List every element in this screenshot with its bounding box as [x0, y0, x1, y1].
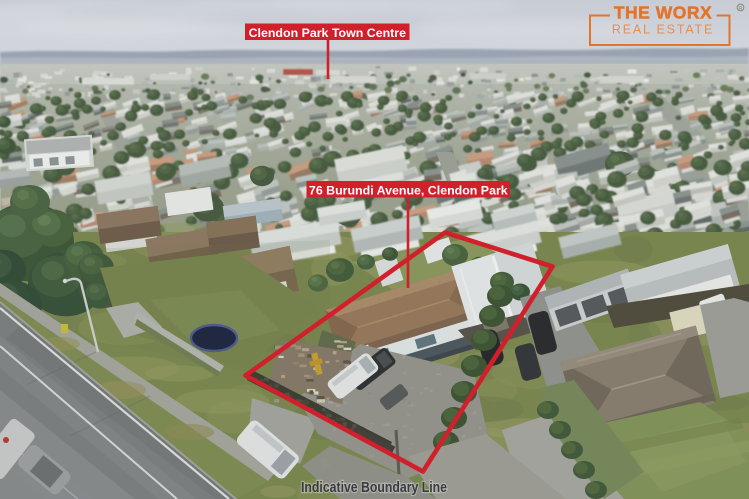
svg-text:R: R	[739, 6, 743, 12]
svg-text:THE WORX: THE WORX	[614, 3, 712, 23]
svg-text:REAL ESTATE: REAL ESTATE	[612, 23, 714, 37]
svg-text:76 Burundi Avenue, Clendon Par: 76 Burundi Avenue, Clendon Park	[309, 183, 508, 197]
svg-text:Clendon Park Town Centre: Clendon Park Town Centre	[249, 26, 407, 40]
svg-text:Indicative Boundary Line: Indicative Boundary Line	[301, 479, 447, 496]
